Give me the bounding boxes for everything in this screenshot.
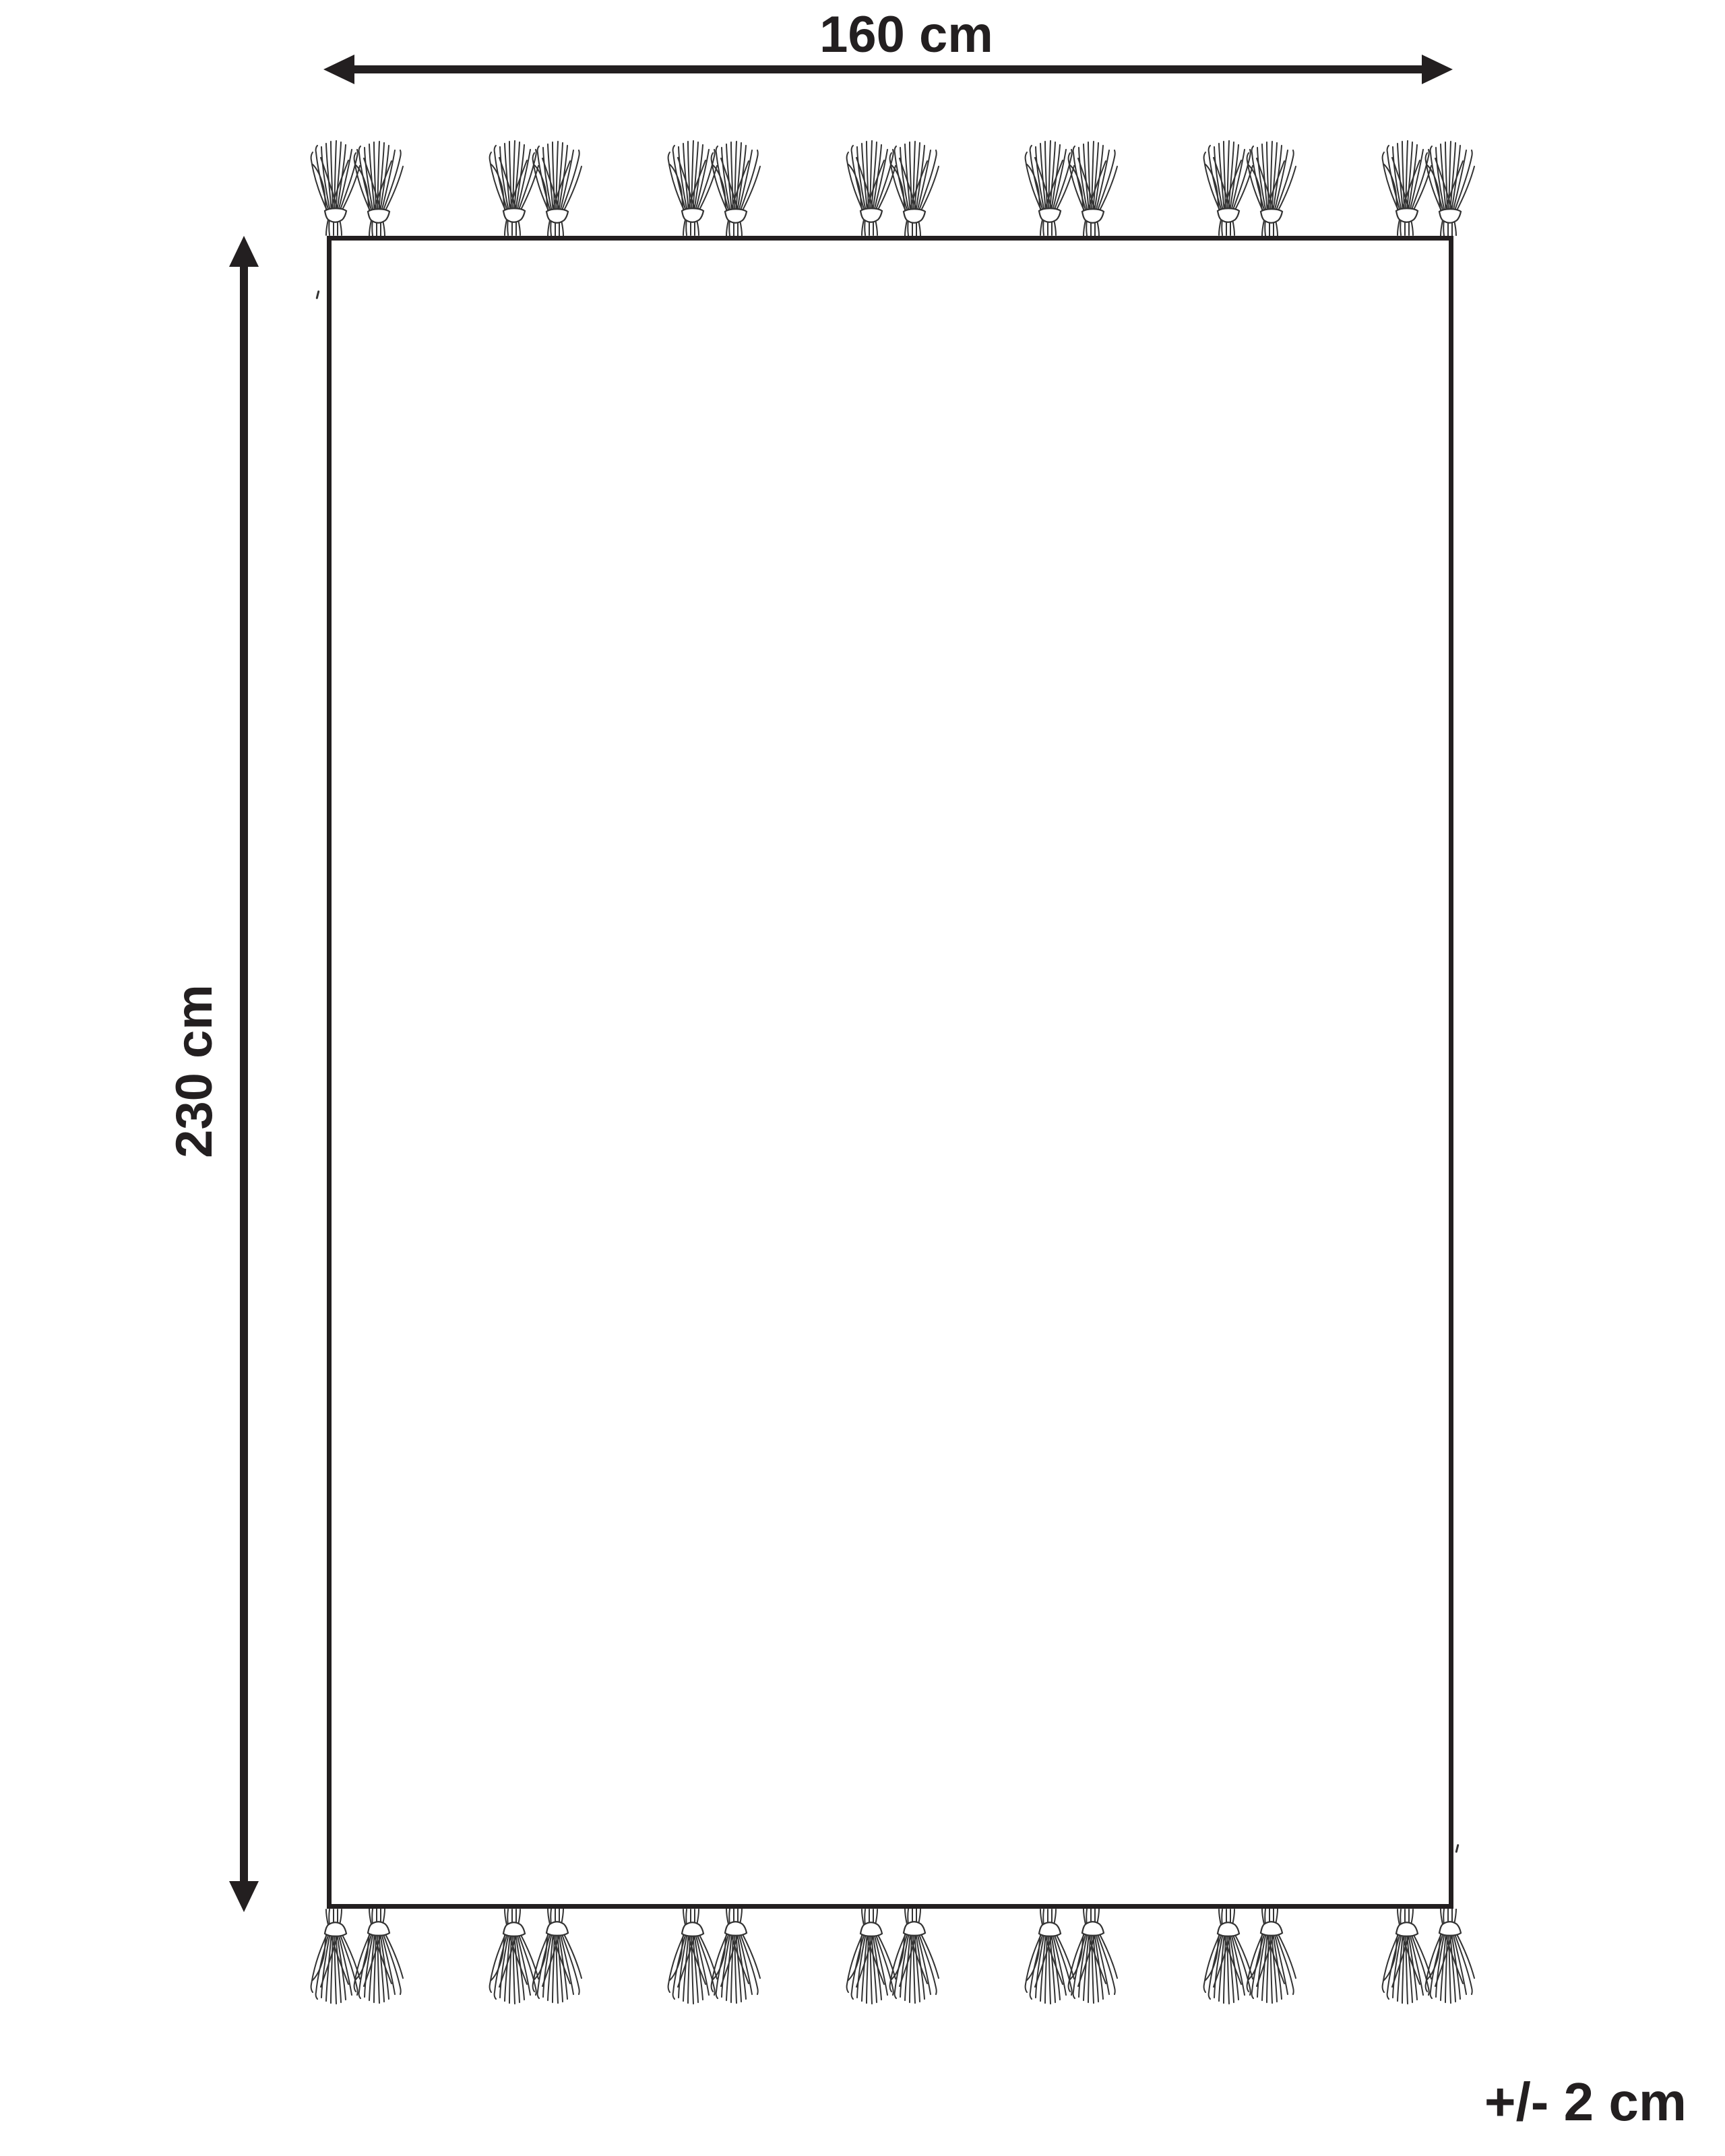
arrowhead-down-icon	[229, 1881, 259, 1912]
tassel-pair	[664, 137, 764, 236]
tassel-pair	[307, 137, 407, 236]
tassel-pair	[1200, 137, 1300, 236]
tolerance-label: +/- 2 cm	[1484, 2075, 1687, 2129]
tassel-pair	[486, 137, 586, 236]
width-dimension-label: 160 cm	[819, 9, 993, 61]
top-tassel-row	[0, 137, 1725, 236]
height-dimension-label: 230 cm	[169, 984, 220, 1158]
bottom-tassel-row	[0, 1909, 1725, 2007]
rug-dimension-diagram: 160 cm 230 cm +/- 2 cm	[0, 0, 1725, 2156]
width-arrow-shaft	[344, 65, 1433, 73]
height-arrow-shaft	[240, 256, 248, 1892]
arrowhead-right-icon	[1422, 55, 1453, 84]
tassel-pair	[1022, 137, 1121, 236]
tassel-pair	[843, 1909, 943, 2007]
tassel-pair	[843, 137, 943, 236]
tassel-pair	[307, 1909, 407, 2007]
tassel-pair	[486, 1909, 586, 2007]
rug-outline	[327, 236, 1453, 1909]
height-dimension-arrow	[229, 236, 259, 1912]
stray-mark	[315, 290, 319, 299]
tassel-pair	[1379, 1909, 1478, 2007]
tassel-pair	[1022, 1909, 1121, 2007]
stray-mark	[1455, 1844, 1459, 1853]
tassel-pair	[1379, 137, 1478, 236]
tassel-pair	[1200, 1909, 1300, 2007]
tassel-pair	[664, 1909, 764, 2007]
